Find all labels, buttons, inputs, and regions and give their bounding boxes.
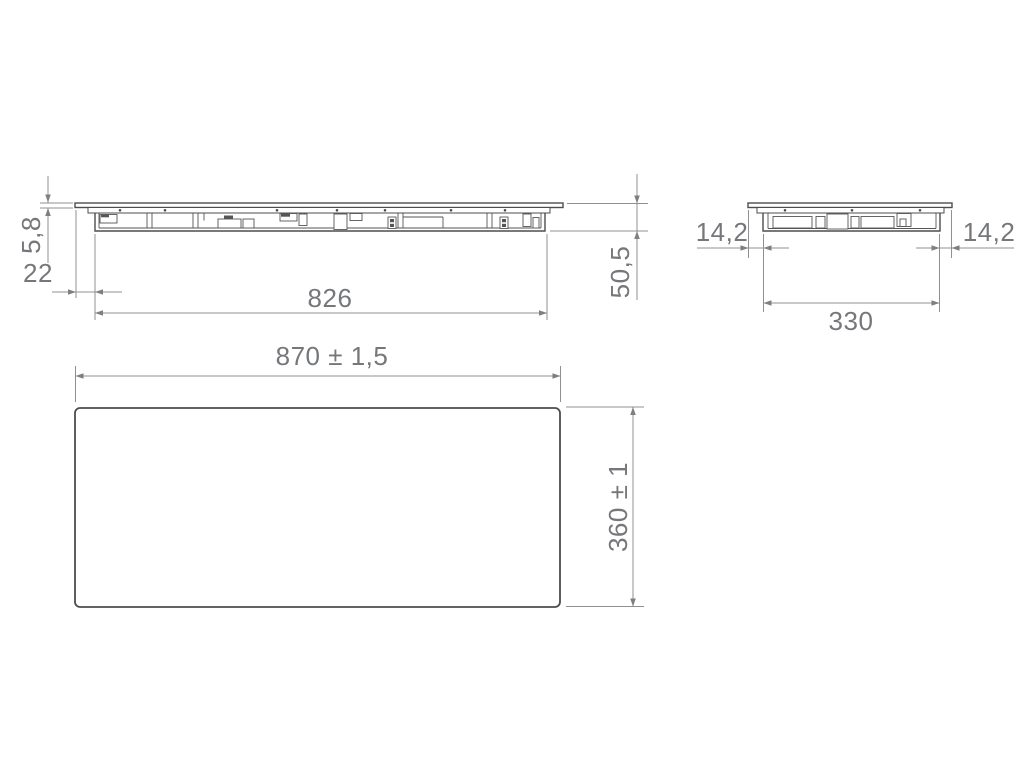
dim-side-left-overhang: 14,2 [696, 210, 789, 312]
front-frame-bar [88, 208, 550, 214]
dim-glass-thickness-label: 5,8 [16, 216, 46, 254]
dim-overall-width-label: 870 ± 1,5 [276, 341, 389, 371]
side-terminal-bracket [897, 214, 911, 227]
dim-body-depth: 330 [764, 300, 940, 336]
front-internal-components [100, 214, 539, 230]
dim-side-left-overhang-label: 14,2 [696, 217, 749, 247]
front-elevation-view: 5,8 22 826 50,5 [16, 174, 648, 320]
dim-glass-thickness: 5,8 [16, 176, 73, 263]
dim-overall-depth: 360 ± 1 [566, 407, 644, 607]
dim-side-right-overhang-label: 14,2 [963, 217, 1016, 247]
dim-left-offset-label: 22 [23, 258, 53, 288]
dim-body-width-label: 826 [308, 283, 353, 313]
side-junction-box [827, 214, 848, 229]
dim-body-width: 826 [95, 234, 547, 320]
top-glass-outline [75, 408, 560, 607]
dim-overall-width: 870 ± 1,5 [76, 341, 561, 402]
dim-side-right-overhang: 14,2 [916, 210, 1015, 312]
drawing-canvas: 5,8 22 826 50,5 [0, 0, 1024, 768]
front-glass-plate [75, 203, 563, 208]
dim-overall-depth-label: 360 ± 1 [603, 462, 633, 552]
side-glass-plate [748, 203, 952, 208]
top-plan-view: 870 ± 1,5 360 ± 1 [75, 341, 644, 607]
dim-total-height: 50,5 [550, 174, 648, 300]
technical-drawing: 5,8 22 826 50,5 [0, 0, 1024, 768]
side-elevation-view: 14,2 14,2 330 [696, 203, 1016, 336]
front-body-inner [99, 214, 541, 229]
dim-body-depth-label: 330 [829, 306, 874, 336]
dim-total-height-label: 50,5 [605, 246, 635, 299]
